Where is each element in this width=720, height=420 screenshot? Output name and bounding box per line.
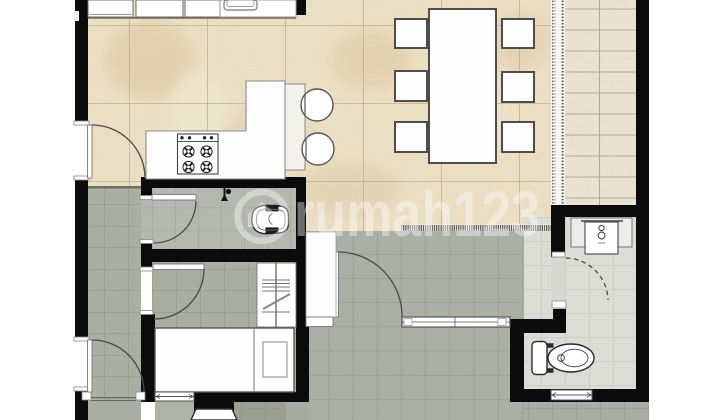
- svg-text:rumah123: rumah123: [294, 178, 540, 250]
